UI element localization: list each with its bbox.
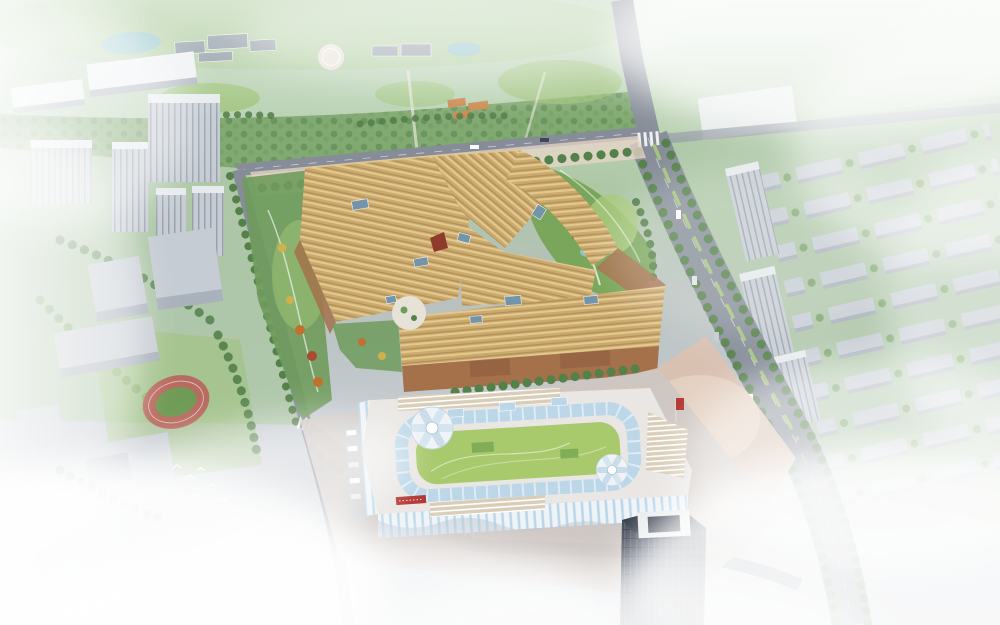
office-cube (148, 228, 224, 310)
skylight (386, 295, 397, 303)
dark-highrise-tower (620, 510, 706, 625)
aerial-render-canvas (0, 0, 1000, 625)
tower-roof (637, 510, 690, 539)
lawn-pavilion (560, 448, 579, 458)
tower-roof-core (648, 515, 681, 533)
autumn-tree (278, 244, 287, 253)
park-pond (447, 42, 481, 56)
vehicle (692, 276, 697, 285)
skylight (505, 295, 522, 305)
tower-roof (148, 94, 220, 103)
palace-hall (207, 34, 248, 50)
autumn-tree (295, 325, 305, 335)
autumn-tree (307, 351, 317, 361)
circular-courtyard (392, 296, 426, 330)
skylight (584, 296, 599, 305)
facade-mural (469, 359, 510, 378)
palace-complex-east (372, 44, 431, 56)
circular-plaza (318, 44, 344, 70)
skylight (470, 316, 482, 324)
tower-roof (192, 186, 224, 193)
palace-hall (250, 39, 277, 51)
vehicle (676, 210, 681, 219)
palace-hall (372, 46, 398, 56)
tower-block (148, 94, 220, 182)
tower-roof (112, 142, 148, 149)
dome-cap (608, 466, 617, 475)
dome-tent-small (596, 454, 628, 486)
courtyard-tree (401, 307, 408, 314)
tower-roof (30, 140, 92, 148)
tower-roof (156, 188, 186, 195)
courtyard-tree (411, 315, 417, 321)
palace-hall (198, 51, 232, 62)
vehicle (714, 332, 719, 341)
park-lawn-patch (498, 60, 622, 104)
stall-box (551, 397, 567, 406)
vehicle (470, 145, 479, 149)
stall-box (499, 402, 515, 411)
tower-block (112, 142, 148, 232)
autumn-tree (286, 296, 294, 304)
office-cube (88, 256, 149, 322)
autumn-tree (378, 352, 386, 360)
dome-tent-large (411, 407, 453, 449)
lawn-pavilion (471, 442, 494, 453)
tower-block (30, 140, 92, 204)
dome-cap (426, 422, 438, 434)
stall-box (447, 408, 463, 417)
vehicle (540, 138, 549, 142)
autumn-tree (313, 377, 323, 387)
aerial-rendering (0, 0, 1000, 625)
palace-hall (401, 44, 431, 56)
park-lawn-patch (375, 81, 455, 107)
autumn-tree (358, 338, 366, 346)
